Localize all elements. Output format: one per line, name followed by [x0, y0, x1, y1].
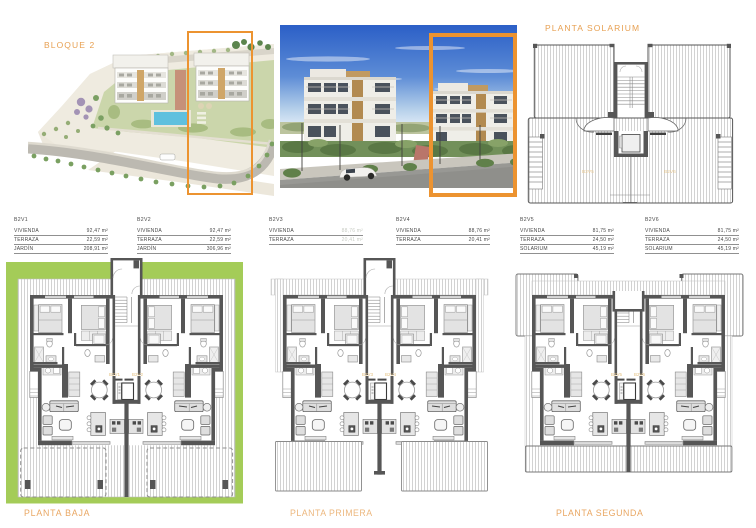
- svg-text:B2V4: B2V4: [385, 372, 397, 377]
- svg-text:B2V3: B2V3: [362, 372, 374, 377]
- svg-text:B2V6: B2V6: [664, 169, 676, 175]
- svg-text:B2V5: B2V5: [582, 169, 594, 175]
- svg-text:B2V2: B2V2: [132, 372, 144, 377]
- svg-text:B2V1: B2V1: [109, 372, 121, 377]
- svg-text:B2V6: B2V6: [634, 372, 646, 377]
- svg-text:B2V5: B2V5: [611, 372, 623, 377]
